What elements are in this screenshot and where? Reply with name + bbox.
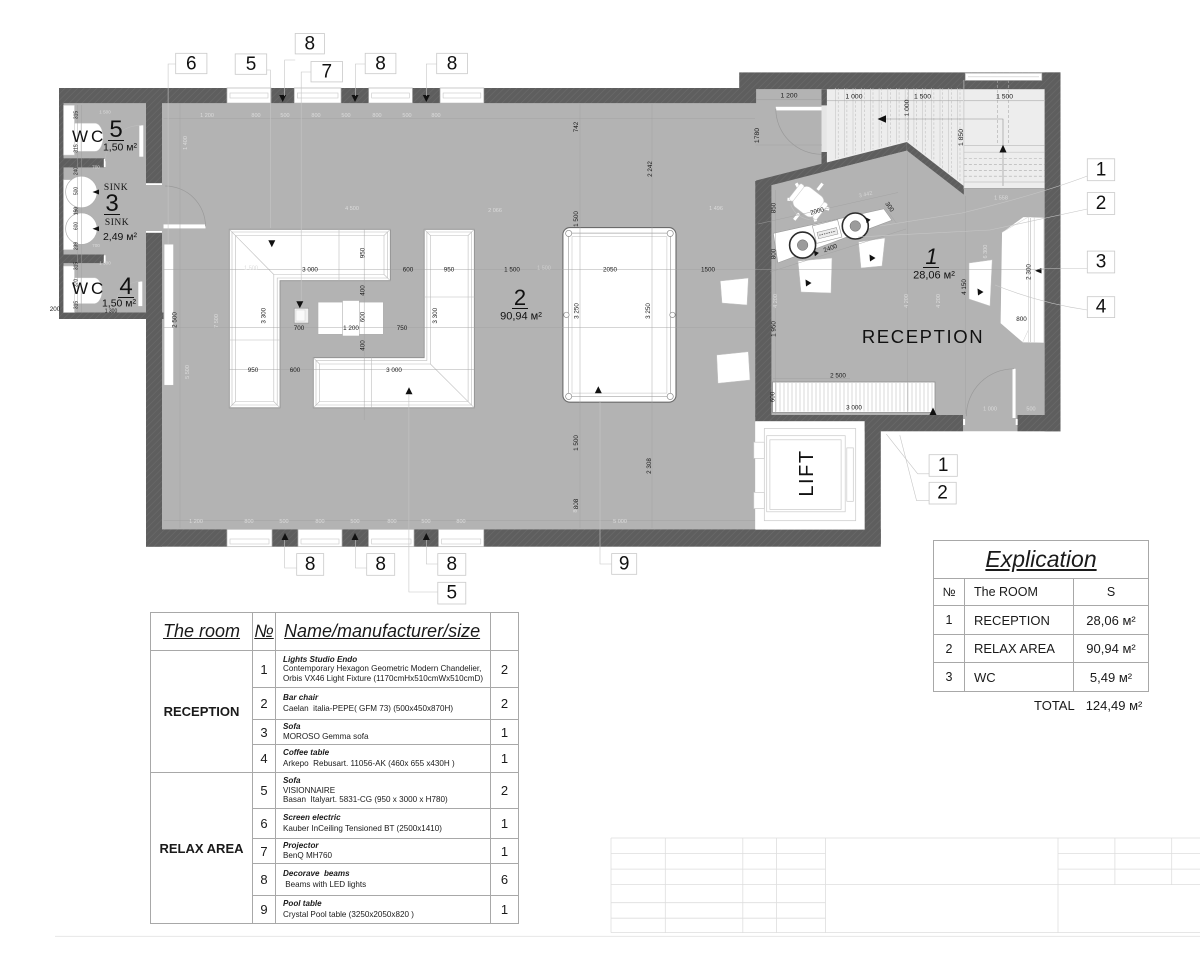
svg-text:4 200: 4 200 xyxy=(904,294,910,308)
svg-text:1 500: 1 500 xyxy=(573,211,580,227)
svg-text:90,94 м²: 90,94 м² xyxy=(500,311,542,323)
svg-text:1 000: 1 000 xyxy=(983,407,997,413)
svg-text:500: 500 xyxy=(341,113,350,119)
svg-text:600: 600 xyxy=(74,222,80,231)
svg-text:1,50 м²: 1,50 м² xyxy=(103,142,138,154)
svg-text:1780: 1780 xyxy=(754,128,761,143)
svg-text:6: 6 xyxy=(186,54,197,75)
svg-text:400: 400 xyxy=(360,285,367,296)
svg-text:8: 8 xyxy=(305,34,316,55)
svg-text:500: 500 xyxy=(421,519,430,525)
svg-text:1 000: 1 000 xyxy=(845,94,862,101)
svg-text:2: 2 xyxy=(1096,193,1107,214)
svg-text:3 250: 3 250 xyxy=(574,303,581,319)
svg-text:500: 500 xyxy=(350,519,359,525)
svg-text:4: 4 xyxy=(119,273,132,300)
svg-text:3 000: 3 000 xyxy=(846,405,862,412)
svg-text:2: 2 xyxy=(514,285,526,310)
svg-text:800: 800 xyxy=(372,113,381,119)
svg-text:2050: 2050 xyxy=(603,266,618,273)
svg-text:3 300: 3 300 xyxy=(432,307,439,323)
svg-text:SINK: SINK xyxy=(105,218,129,228)
svg-text:LIFT: LIFT xyxy=(796,449,818,496)
svg-text:800: 800 xyxy=(251,113,260,119)
svg-text:8: 8 xyxy=(447,554,458,575)
svg-text:1 500: 1 500 xyxy=(573,435,580,451)
svg-text:2 500: 2 500 xyxy=(830,373,846,380)
svg-text:4 150: 4 150 xyxy=(961,279,968,295)
svg-text:1 500: 1 500 xyxy=(244,266,258,272)
svg-text:950: 950 xyxy=(360,247,367,258)
svg-text:4: 4 xyxy=(1096,297,1107,318)
svg-text:1 200: 1 200 xyxy=(200,113,214,119)
svg-text:500: 500 xyxy=(280,113,289,119)
svg-text:800: 800 xyxy=(244,519,253,525)
svg-text:800: 800 xyxy=(315,519,324,525)
svg-text:600: 600 xyxy=(290,367,301,374)
svg-text:5: 5 xyxy=(447,583,458,604)
svg-text:400: 400 xyxy=(360,340,367,351)
svg-text:3 250: 3 250 xyxy=(645,303,652,319)
svg-text:2 066: 2 066 xyxy=(488,208,502,214)
svg-text:600: 600 xyxy=(360,311,367,322)
svg-text:WC: WC xyxy=(72,127,106,146)
svg-text:200: 200 xyxy=(50,306,61,313)
svg-text:800: 800 xyxy=(311,113,320,119)
svg-text:700: 700 xyxy=(92,165,100,170)
svg-text:800: 800 xyxy=(771,248,778,259)
svg-text:8: 8 xyxy=(305,554,316,575)
svg-text:4 500: 4 500 xyxy=(345,206,359,212)
svg-text:1 500: 1 500 xyxy=(99,110,111,115)
svg-text:600: 600 xyxy=(403,266,414,273)
svg-text:1 496: 1 496 xyxy=(709,206,723,212)
svg-text:1 500: 1 500 xyxy=(996,94,1013,101)
svg-text:7: 7 xyxy=(322,62,333,83)
svg-text:315: 315 xyxy=(74,111,80,120)
svg-text:WC: WC xyxy=(72,279,106,298)
svg-text:800: 800 xyxy=(1016,316,1027,323)
svg-text:1500: 1500 xyxy=(701,266,716,273)
svg-text:8: 8 xyxy=(375,554,386,575)
svg-text:7 500: 7 500 xyxy=(214,314,220,328)
svg-text:5: 5 xyxy=(109,116,122,143)
svg-text:2 500: 2 500 xyxy=(172,312,179,328)
svg-text:8: 8 xyxy=(375,54,386,75)
svg-text:RECEPTION: RECEPTION xyxy=(862,326,984,347)
svg-text:950: 950 xyxy=(444,266,455,273)
svg-text:2 300: 2 300 xyxy=(1026,264,1033,280)
svg-text:1 950: 1 950 xyxy=(771,321,778,337)
svg-text:808: 808 xyxy=(573,498,580,509)
svg-text:1 500: 1 500 xyxy=(504,266,520,273)
svg-text:6 300: 6 300 xyxy=(983,245,989,259)
svg-text:5: 5 xyxy=(246,54,257,75)
svg-text:600: 600 xyxy=(770,391,777,402)
svg-text:239: 239 xyxy=(74,242,80,251)
svg-text:3 300: 3 300 xyxy=(261,307,268,323)
svg-text:2: 2 xyxy=(937,483,948,504)
svg-text:4 200: 4 200 xyxy=(773,294,779,308)
svg-text:1 400: 1 400 xyxy=(183,136,189,150)
svg-text:4 200: 4 200 xyxy=(936,294,942,308)
svg-text:1 200: 1 200 xyxy=(780,93,797,100)
svg-text:9: 9 xyxy=(619,554,630,575)
svg-text:1 000: 1 000 xyxy=(904,99,911,116)
svg-text:500: 500 xyxy=(279,519,288,525)
svg-text:742: 742 xyxy=(573,121,580,132)
svg-text:850: 850 xyxy=(771,202,778,213)
svg-text:800: 800 xyxy=(456,519,465,525)
svg-text:1,50 м²: 1,50 м² xyxy=(102,298,137,310)
svg-text:3: 3 xyxy=(1096,252,1107,273)
svg-text:800: 800 xyxy=(387,519,396,525)
svg-text:700: 700 xyxy=(294,325,305,332)
svg-text:950: 950 xyxy=(248,367,259,374)
svg-text:150: 150 xyxy=(74,207,80,216)
svg-text:1: 1 xyxy=(938,455,949,476)
svg-text:2 242: 2 242 xyxy=(647,161,654,177)
svg-text:2,49 м²: 2,49 м² xyxy=(103,231,138,243)
svg-text:1 200: 1 200 xyxy=(343,325,359,332)
svg-text:315: 315 xyxy=(74,262,80,271)
svg-text:700: 700 xyxy=(92,243,100,248)
svg-text:8: 8 xyxy=(447,54,458,75)
svg-text:1 500: 1 500 xyxy=(99,261,111,266)
svg-text:2 308: 2 308 xyxy=(646,458,653,474)
svg-text:1: 1 xyxy=(1096,159,1107,180)
svg-text:5 500: 5 500 xyxy=(185,365,191,379)
svg-text:3: 3 xyxy=(105,190,118,217)
svg-text:1 500: 1 500 xyxy=(914,94,931,101)
svg-text:500: 500 xyxy=(402,113,411,119)
svg-text:500: 500 xyxy=(1026,407,1035,413)
svg-text:500: 500 xyxy=(74,187,80,196)
svg-text:1: 1 xyxy=(925,244,937,269)
svg-text:1 558: 1 558 xyxy=(994,196,1008,202)
svg-text:1 500: 1 500 xyxy=(537,266,551,272)
svg-text:3 000: 3 000 xyxy=(302,266,318,273)
svg-text:1 200: 1 200 xyxy=(189,519,203,525)
svg-text:28,06 м²: 28,06 м² xyxy=(913,270,955,282)
svg-text:1 850: 1 850 xyxy=(958,129,965,146)
svg-text:800: 800 xyxy=(431,113,440,119)
svg-text:315: 315 xyxy=(74,301,80,310)
svg-text:5 000: 5 000 xyxy=(613,519,627,525)
svg-text:SINK: SINK xyxy=(104,183,128,193)
svg-text:3 000: 3 000 xyxy=(386,367,402,374)
svg-text:750: 750 xyxy=(397,325,408,332)
svg-text:240: 240 xyxy=(74,167,80,176)
